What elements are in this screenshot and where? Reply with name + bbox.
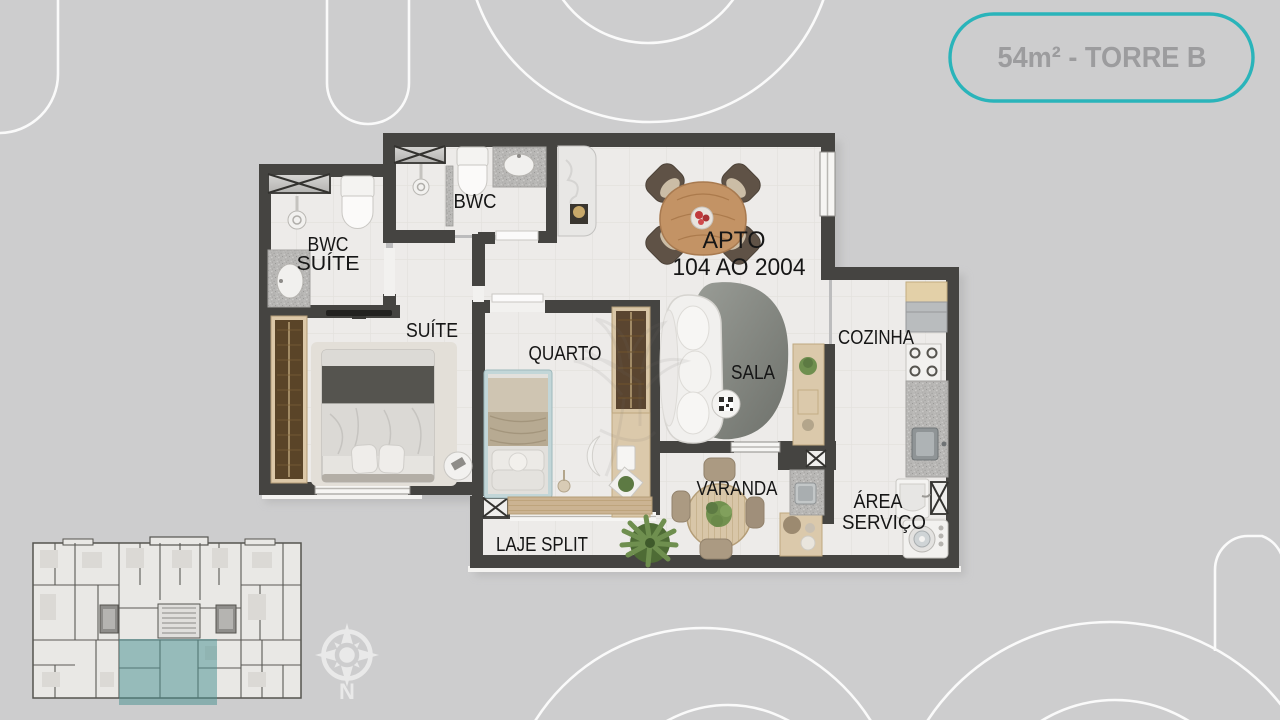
svg-text:SUÍTE: SUÍTE <box>406 319 458 342</box>
svg-text:VARANDA: VARANDA <box>697 478 779 500</box>
svg-text:54m² - TORRE B: 54m² - TORRE B <box>998 42 1207 74</box>
svg-text:SUÍTE: SUÍTE <box>297 252 360 275</box>
svg-text:SALA: SALA <box>731 362 776 384</box>
svg-text:QUARTO: QUARTO <box>529 343 602 365</box>
svg-text:ÁREA: ÁREA <box>854 490 904 513</box>
svg-text:104 AO 2004: 104 AO 2004 <box>673 254 806 281</box>
svg-text:SERVIÇO: SERVIÇO <box>842 512 926 534</box>
svg-text:APTO: APTO <box>703 227 766 254</box>
svg-text:BWC: BWC <box>454 191 497 213</box>
svg-text:N: N <box>339 679 355 704</box>
svg-text:LAJE SPLIT: LAJE SPLIT <box>496 534 588 556</box>
svg-text:COZINHA: COZINHA <box>838 327 915 349</box>
